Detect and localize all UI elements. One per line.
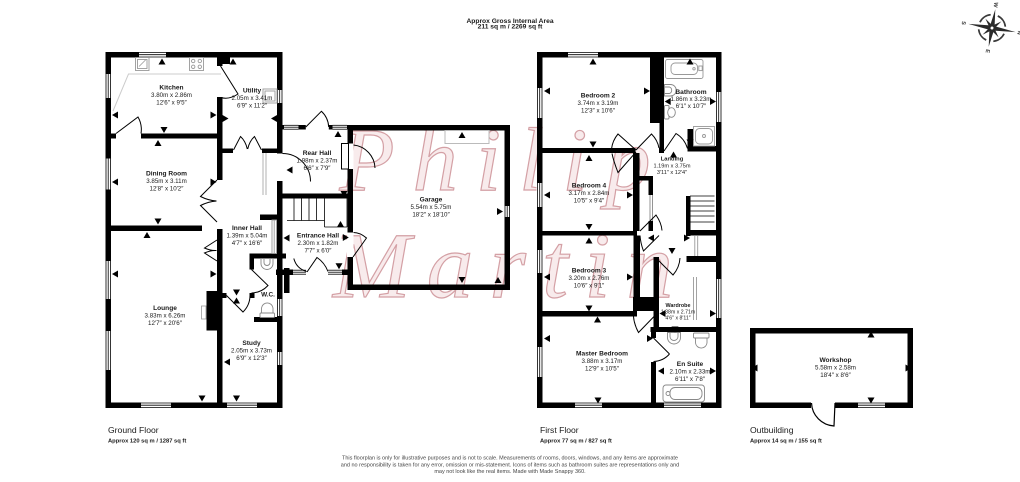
svg-text:W.C.: W.C. [261,292,275,299]
svg-text:2.30m x 1.82m: 2.30m x 1.82m [298,240,339,247]
svg-text:Bedroom 4: Bedroom 4 [572,183,607,190]
svg-text:3.85m x 3.11m: 3.85m x 3.11m [146,178,186,185]
svg-text:Outbuilding: Outbuilding [750,425,794,435]
svg-text:5.54m x 5.75m: 5.54m x 5.75m [411,204,452,211]
svg-text:18′2″ x 18′10″: 18′2″ x 18′10″ [412,211,450,218]
svg-text:7′7″ x 6′0″: 7′7″ x 6′0″ [305,247,333,254]
svg-text:Master Bedroom: Master Bedroom [576,351,628,358]
svg-text:2.05m x 3.41m: 2.05m x 3.41m [232,95,273,102]
svg-text:12′3″ x 10′6″: 12′3″ x 10′6″ [581,107,616,114]
svg-text:3.80m x 2.86m: 3.80m x 2.86m [151,92,192,99]
svg-text:Study: Study [242,340,261,347]
svg-text:Approx 77 sq m / 827 sq ft: Approx 77 sq m / 827 sq ft [540,439,612,445]
svg-text:Approx 120 sq m / 1287 sq ft: Approx 120 sq m / 1287 sq ft [108,439,186,445]
svg-text:2.10m x 2.33m: 2.10m x 2.33m [670,369,711,376]
svg-text:Rear Hall: Rear Hall [303,150,332,157]
svg-text:Dining Room: Dining Room [146,171,187,178]
svg-text:Workshop: Workshop [819,357,851,364]
svg-text:1.86m x 3.23m: 1.86m x 3.23m [671,96,712,103]
svg-text:12′6″ x 9′5″: 12′6″ x 9′5″ [156,99,187,106]
svg-text:4′6″ x 8′11″: 4′6″ x 8′11″ [665,316,690,322]
svg-text:This floorplan is only for ill: This floorplan is only for illustrative … [342,456,678,462]
svg-text:6′11″ x 7′8″: 6′11″ x 7′8″ [675,376,706,383]
svg-text:Ground Floor: Ground Floor [108,425,159,435]
svg-text:Bedroom 3: Bedroom 3 [572,268,607,275]
svg-text:Utility: Utility [243,88,262,95]
svg-text:may not look like the real ite: may not look like the real items. Made w… [434,469,586,475]
svg-text:12′7″ x 20′6″: 12′7″ x 20′6″ [148,320,183,327]
svg-text:3.74m x 3.19m: 3.74m x 3.19m [578,100,619,107]
svg-text:18′4″ x 8′6″: 18′4″ x 8′6″ [820,372,851,379]
svg-text:First Floor: First Floor [540,425,579,435]
svg-text:3.88m x 3.17m: 3.88m x 3.17m [582,358,623,365]
svg-text:Inner Hall: Inner Hall [232,225,262,232]
svg-text:Bathroom: Bathroom [675,89,706,96]
svg-text:12′9″ x 10′5″: 12′9″ x 10′5″ [585,365,620,372]
svg-text:Entrance Hall: Entrance Hall [297,233,339,240]
svg-text:1.39m x 5.04m: 1.39m x 5.04m [227,233,268,240]
svg-text:En Suite: En Suite [677,361,704,368]
svg-text:6′6″ x 7′9″: 6′6″ x 7′9″ [304,165,332,172]
svg-text:12′8″ x 10′2″: 12′8″ x 10′2″ [150,185,185,192]
svg-text:3.83m x 6.26m: 3.83m x 6.26m [145,313,186,320]
svg-text:2.05m x 3.73m: 2.05m x 3.73m [231,348,272,355]
svg-text:Bedroom 2: Bedroom 2 [581,93,616,100]
svg-text:211 sq m / 2269 sq ft: 211 sq m / 2269 sq ft [478,24,543,31]
svg-text:10′6″ x 9′1″: 10′6″ x 9′1″ [574,282,605,289]
svg-text:10′5″ x 9′4″: 10′5″ x 9′4″ [574,197,605,204]
svg-text:Garage: Garage [420,197,443,204]
svg-text:1.19m x 3.75m: 1.19m x 3.75m [654,164,691,170]
svg-text:3.20m x 2.76m: 3.20m x 2.76m [569,275,610,282]
svg-text:5.58m x 2.58m: 5.58m x 2.58m [815,365,856,372]
svg-text:3.17m x 2.84m: 3.17m x 2.84m [569,190,610,197]
svg-text:Lounge: Lounge [153,305,177,312]
svg-text:6′9″ x 12′3″: 6′9″ x 12′3″ [236,355,267,362]
svg-text:and no responsibility is taken: and no responsibility is taken for any e… [341,463,679,469]
svg-text:1.98m x 2.37m: 1.98m x 2.37m [297,158,338,165]
svg-text:4′7″ x 16′6″: 4′7″ x 16′6″ [232,240,263,247]
svg-text:3′11″ x 12′4″: 3′11″ x 12′4″ [657,170,687,176]
svg-text:6′9″ x 11′2″: 6′9″ x 11′2″ [237,102,268,109]
svg-text:Kitchen: Kitchen [159,85,183,92]
svg-text:Approx 14 sq m / 155 sq ft: Approx 14 sq m / 155 sq ft [750,439,822,445]
svg-text:6′1″ x 10′7″: 6′1″ x 10′7″ [676,103,707,110]
svg-text:Wardrobe: Wardrobe [666,303,691,309]
